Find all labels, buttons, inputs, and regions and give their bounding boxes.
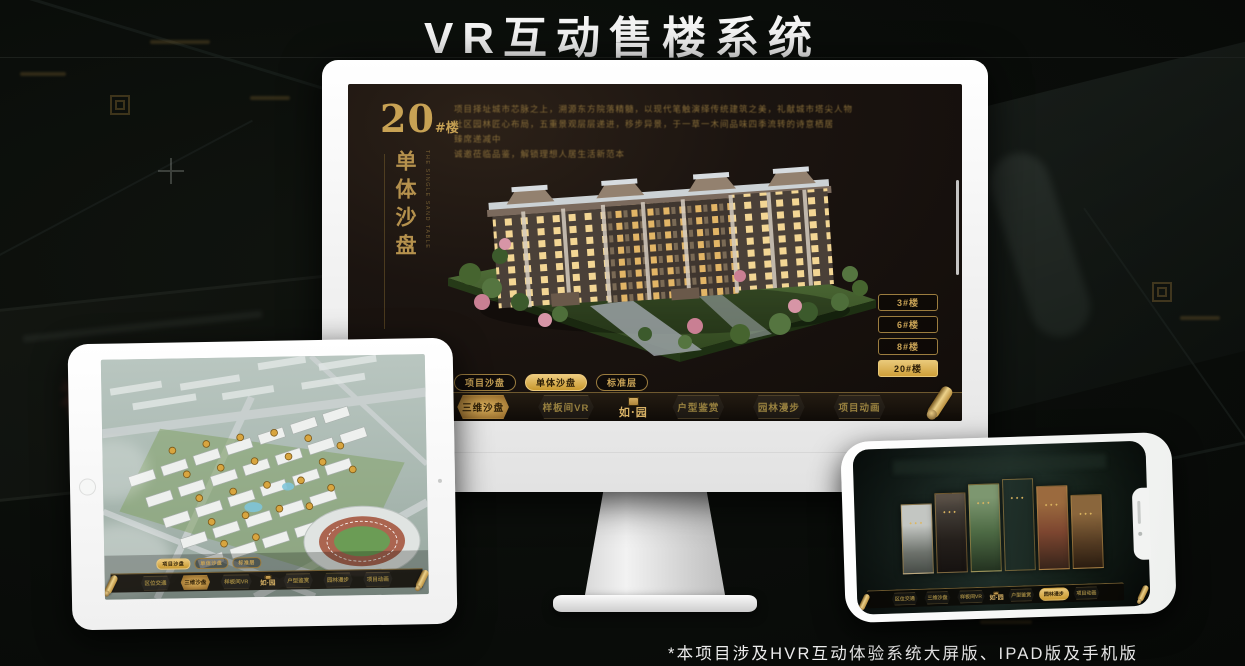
section-title: 单体沙盘 bbox=[390, 150, 420, 262]
background-road bbox=[0, 120, 253, 263]
phone: 区位交通 三维沙盘 样板间VR 如·园 户型鉴赏 园林漫步 项目动画 bbox=[840, 432, 1177, 623]
map-logo-icon bbox=[1152, 282, 1172, 302]
nav-item-3d-sandtable[interactable]: 三维沙盘 bbox=[922, 591, 952, 605]
brand-logo: 如·园 bbox=[260, 575, 275, 587]
section-title-block: 单体沙盘 THE SINGLE SAND TABLE bbox=[390, 150, 430, 262]
nav-item-showroom-vr[interactable]: 样板间VR bbox=[955, 590, 987, 604]
background-map-label bbox=[1180, 316, 1220, 320]
tablet-tab-project-sandtable[interactable]: 项目沙盘 bbox=[156, 558, 190, 570]
scene-panel-row bbox=[900, 476, 1104, 574]
scene-panel-building-facade[interactable] bbox=[1001, 478, 1035, 571]
background-map-label bbox=[250, 96, 290, 100]
tab-project-sandtable[interactable]: 项目沙盘 bbox=[454, 374, 516, 391]
brand-logo: 如·园 bbox=[989, 591, 1003, 601]
description-line: 臻席递减中 bbox=[454, 132, 899, 147]
nav-item-project-video[interactable]: 项目动画 bbox=[1071, 586, 1101, 600]
page-title: VR互动售楼系统 bbox=[0, 2, 1245, 66]
scene-panel-garden[interactable] bbox=[968, 483, 1002, 572]
compass-star-icon bbox=[158, 158, 184, 184]
camera-dot bbox=[438, 479, 442, 483]
nav-item-location[interactable]: 区位交通 bbox=[890, 592, 920, 606]
background-map-label bbox=[20, 72, 66, 76]
phone-screen: 区位交通 三维沙盘 样板间VR 如·园 户型鉴赏 园林漫步 项目动画 bbox=[852, 441, 1150, 615]
nav-item-project-video[interactable]: 项目动画 bbox=[829, 395, 889, 419]
floor-button-8[interactable]: 8#楼 bbox=[878, 338, 938, 355]
floor-button-3[interactable]: 3#楼 bbox=[878, 294, 938, 311]
nav-item-floorplan[interactable]: 户型鉴赏 bbox=[1006, 588, 1036, 602]
sign-top-line bbox=[23, 310, 262, 342]
floor-button-20[interactable]: 20#楼 bbox=[878, 360, 938, 377]
nav-item-garden-walk[interactable]: 园林漫步 bbox=[749, 395, 809, 419]
promo-canvas: 福星惠誉 VR互动售楼系统 *本项目涉及HVR互动体验系统大屏版、IPAD版及手… bbox=[0, 0, 1245, 666]
seal-stamp-icon bbox=[628, 397, 639, 406]
brand-logo-text: 如·园 bbox=[990, 595, 1004, 601]
tab-standard-floor[interactable]: 标准层 bbox=[596, 374, 648, 391]
scene-panel-autumn-trees[interactable] bbox=[1036, 485, 1070, 570]
nav-item-garden-walk[interactable]: 园林漫步 bbox=[1039, 587, 1069, 601]
brand-logo-text: 如·园 bbox=[260, 580, 275, 587]
nav-item-garden-walk[interactable]: 园林漫步 bbox=[321, 572, 355, 588]
scene-panel-courtyard[interactable] bbox=[900, 503, 933, 574]
phone-nav-bar: 区位交通 三维沙盘 样板间VR 如·园 户型鉴赏 园林漫步 项目动画 bbox=[867, 582, 1124, 608]
description-line: 社区园林匠心布局，五重景观层层递进，移步异景，于一草一木间品味四季流转的诗意栖居 bbox=[454, 117, 899, 132]
interior-beam bbox=[893, 454, 1106, 475]
nav-item-showroom-vr[interactable]: 样板间VR bbox=[218, 574, 254, 590]
nav-item-project-video[interactable]: 项目动画 bbox=[361, 571, 395, 587]
tablet-tab-single-sandtable[interactable]: 单体沙盘 bbox=[194, 558, 228, 570]
nav-item-showroom-vr[interactable]: 样板间VR bbox=[534, 395, 599, 419]
description-line: 项目择址城市芯脉之上，溯源东方院落精髓，以现代笔触演绎传统建筑之美，礼献城市塔尖… bbox=[454, 102, 899, 117]
scene-panel-warm-interior[interactable] bbox=[1070, 494, 1103, 569]
building-render bbox=[440, 158, 886, 372]
tablet-tab-row: 项目沙盘 单体沙盘 标准层 bbox=[156, 557, 261, 570]
building-number: 20#楼 bbox=[380, 96, 459, 141]
brand-logo: 如·园 bbox=[619, 397, 648, 418]
aerial-masterplan bbox=[101, 354, 429, 600]
nav-item-floorplan[interactable]: 户型鉴赏 bbox=[281, 573, 315, 589]
nav-item-3d-sandtable[interactable]: 三维沙盘 bbox=[178, 574, 212, 590]
tablet: 项目沙盘 单体沙盘 标准层 区位交通 三维沙盘 样板间VR 如·园 户型鉴赏 园… bbox=[68, 338, 458, 631]
scene-panel-dark-interior[interactable] bbox=[934, 492, 967, 573]
camera-dot bbox=[1138, 531, 1142, 535]
section-title-en: THE SINGLE SAND TABLE bbox=[424, 150, 430, 262]
floor-button-6[interactable]: 6#楼 bbox=[878, 316, 938, 333]
nav-item-3d-sandtable[interactable]: 三维沙盘 bbox=[453, 395, 513, 419]
tablet-screen: 项目沙盘 单体沙盘 标准层 区位交通 三维沙盘 样板间VR 如·园 户型鉴赏 园… bbox=[101, 354, 429, 600]
background-river bbox=[982, 145, 1098, 344]
golden-scroll-icon[interactable] bbox=[1137, 584, 1150, 602]
phone-notch bbox=[1132, 487, 1151, 559]
screen-scrollbar[interactable] bbox=[956, 180, 959, 275]
monitor-tab-row: 项目沙盘 单体沙盘 标准层 bbox=[454, 374, 648, 391]
speaker-slit bbox=[1137, 500, 1141, 523]
footnote: *本项目涉及HVR互动体验系统大屏版、IPAD版及手机版 bbox=[668, 640, 1138, 664]
building-number-value: 20 bbox=[380, 96, 435, 141]
floor-button-group: 3#楼 6#楼 8#楼 20#楼 bbox=[878, 294, 938, 377]
tab-single-sandtable[interactable]: 单体沙盘 bbox=[525, 374, 587, 391]
monitor-base bbox=[553, 595, 757, 612]
background-road bbox=[1083, 208, 1245, 455]
brand-logo-text: 如·园 bbox=[619, 407, 648, 418]
home-button[interactable] bbox=[79, 478, 96, 495]
nav-item-floorplan[interactable]: 户型鉴赏 bbox=[668, 395, 728, 419]
monitor-stand bbox=[583, 492, 727, 598]
description-text: 项目择址城市芯脉之上，溯源东方院落精髓，以现代笔触演绎传统建筑之美，礼献城市塔尖… bbox=[454, 102, 899, 162]
background-map-label bbox=[980, 620, 1032, 624]
tablet-tab-standard-floor[interactable]: 标准层 bbox=[232, 557, 261, 568]
section-divider bbox=[384, 154, 385, 329]
nav-item-location[interactable]: 区位交通 bbox=[138, 575, 172, 591]
map-logo-icon bbox=[110, 95, 130, 115]
